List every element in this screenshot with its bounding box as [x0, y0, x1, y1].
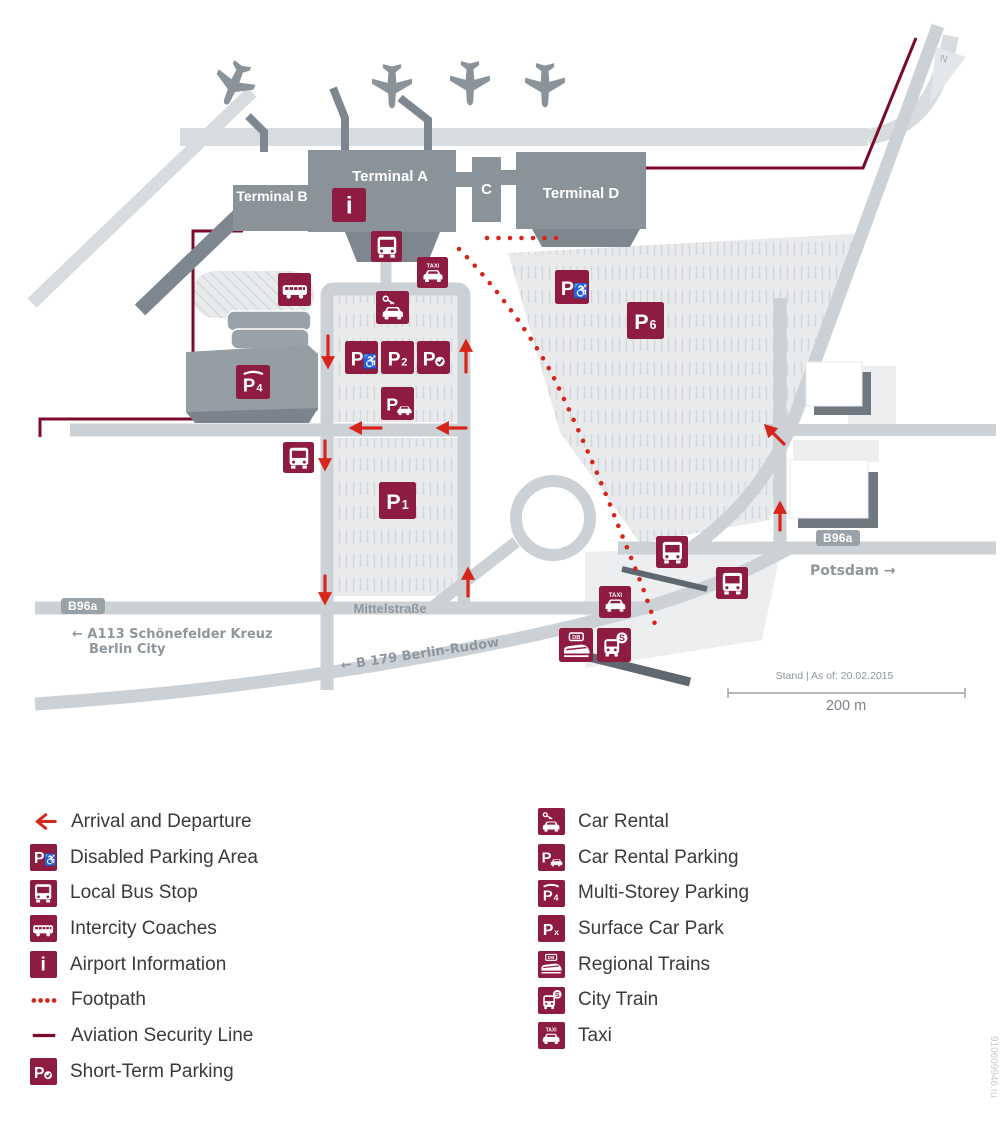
aviation-security-line-right: [642, 38, 916, 168]
terminal-a-building: [308, 150, 456, 232]
legend-row-short-term-parking: Short-Term Parking: [30, 1054, 258, 1090]
terminal-b-label: Terminal B: [233, 189, 311, 205]
scale-bar: [728, 688, 965, 698]
legend-label: Local Bus Stop: [70, 882, 198, 904]
legend-label: Taxi: [578, 1025, 612, 1047]
legend-row-city-train: City Train: [538, 982, 749, 1018]
map-date-stand-label: Stand | As of: 20.02.2015: [752, 670, 917, 682]
parking-p2-badge: [381, 341, 414, 374]
disabled-parking-badge-p6: [555, 270, 589, 304]
taxi-icon: [538, 1022, 565, 1049]
car-rental-parking-icon: [538, 844, 565, 871]
airplane-icons: [207, 56, 565, 112]
b96a-badge-west: B96a: [61, 598, 105, 614]
regional-trains-badge: [559, 628, 593, 662]
potsdam-destination-label: Potsdam →: [810, 563, 900, 579]
disabled-parking-icon: [30, 844, 57, 871]
short-term-parking-badge: [417, 341, 450, 374]
legend-row-car-rental-parking: Car Rental Parking: [538, 840, 749, 876]
aviation-security-line-icon: [30, 1022, 58, 1049]
legend-row-multi-storey-parking: Multi-Storey Parking: [538, 875, 749, 911]
scale-label: 200 m: [796, 698, 896, 714]
legend-row-airport-information: Airport Information: [30, 947, 258, 983]
legend-label: Aviation Security Line: [71, 1025, 253, 1047]
legend-row-disabled-parking: Disabled Parking Area: [30, 840, 258, 876]
parking-p6-badge: [627, 302, 664, 339]
legend-row-regional-trains: Regional Trains: [538, 947, 749, 983]
parking-p4-badge: [236, 365, 270, 399]
terminal-d-label: Terminal D: [517, 186, 645, 203]
intercity-coach-icon: [30, 915, 57, 942]
legend-label: City Train: [578, 989, 658, 1011]
airport-overview-map-page: i TAXI: [0, 0, 1000, 1128]
airport-information-icon: [30, 951, 57, 978]
short-term-parking-icon: [30, 1058, 57, 1085]
legend-row-aviation-security-line: Aviation Security Line: [30, 1018, 258, 1054]
legend-label: Airport Information: [70, 954, 226, 976]
local-bus-stop-badge-east2: [716, 567, 748, 599]
city-train-badge: [597, 628, 631, 662]
legend-row-arrival-departure: Arrival and Departure: [30, 804, 258, 840]
local-bus-stop-badge-terminal: [371, 231, 402, 262]
legend-row-taxi: Taxi: [538, 1018, 749, 1054]
watermark: 910609946.ru: [988, 1036, 999, 1098]
arrival-arrow-icon: [30, 808, 58, 835]
terminal-c-label: C: [472, 182, 501, 199]
taxi-badge-terminal: [417, 257, 448, 288]
regional-trains-icon: [538, 951, 565, 978]
local-bus-stop-badge-east1: [656, 536, 688, 568]
legend-row-footpath: Footpath: [30, 982, 258, 1018]
legend-label: Multi-Storey Parking: [578, 882, 749, 904]
legend-label: Car Rental: [578, 811, 669, 833]
surface-car-park-icon: [538, 915, 565, 942]
legend-label: Footpath: [71, 989, 146, 1011]
terminal-a-label: Terminal A: [330, 169, 450, 186]
taxi-badge-station: [599, 586, 631, 618]
legend-row-local-bus: Local Bus Stop: [30, 875, 258, 911]
legend-label: Surface Car Park: [578, 918, 724, 940]
legend-label: Car Rental Parking: [578, 847, 739, 869]
legend-label: Intercity Coaches: [70, 918, 217, 940]
city-train-icon: [538, 987, 565, 1014]
multi-storey-parking-icon: [538, 880, 565, 907]
legend-row-intercity-coaches: Intercity Coaches: [30, 911, 258, 947]
mittelstrasse-label: Mittelstraße: [330, 601, 450, 616]
a113-destination-label: ← A113 Schönefelder Kreuz Berlin City: [72, 627, 273, 657]
legend-column-left: Arrival and Departure Disabled Parking A…: [30, 804, 258, 1090]
intercity-coaches-badge: [278, 273, 311, 306]
car-rental-badge: [376, 291, 409, 324]
disabled-parking-badge-central: [345, 341, 378, 374]
local-bus-stop-badge-west: [283, 442, 314, 473]
legend-label: Regional Trains: [578, 954, 710, 976]
b96a-badge-east: B96a: [816, 530, 860, 546]
legend-label: Short-Term Parking: [70, 1061, 234, 1083]
legend-label: Disabled Parking Area: [70, 847, 258, 869]
parking-p1-badge: [379, 482, 416, 519]
legend-column-right: Car Rental Car Rental Parking Multi-Stor…: [538, 804, 749, 1054]
airport-information-badge: [332, 188, 366, 222]
local-bus-icon: [30, 880, 57, 907]
footpath-dots-icon: [30, 987, 58, 1014]
car-rental-parking-badge: [381, 387, 414, 420]
map-canvas: Terminal A Terminal B C Terminal D Mitte…: [0, 0, 1000, 760]
legend-row-car-rental: Car Rental: [538, 804, 749, 840]
legend-row-surface-car-park: Surface Car Park: [538, 911, 749, 947]
car-rental-icon: [538, 808, 565, 835]
legend-label: Arrival and Departure: [71, 811, 252, 833]
